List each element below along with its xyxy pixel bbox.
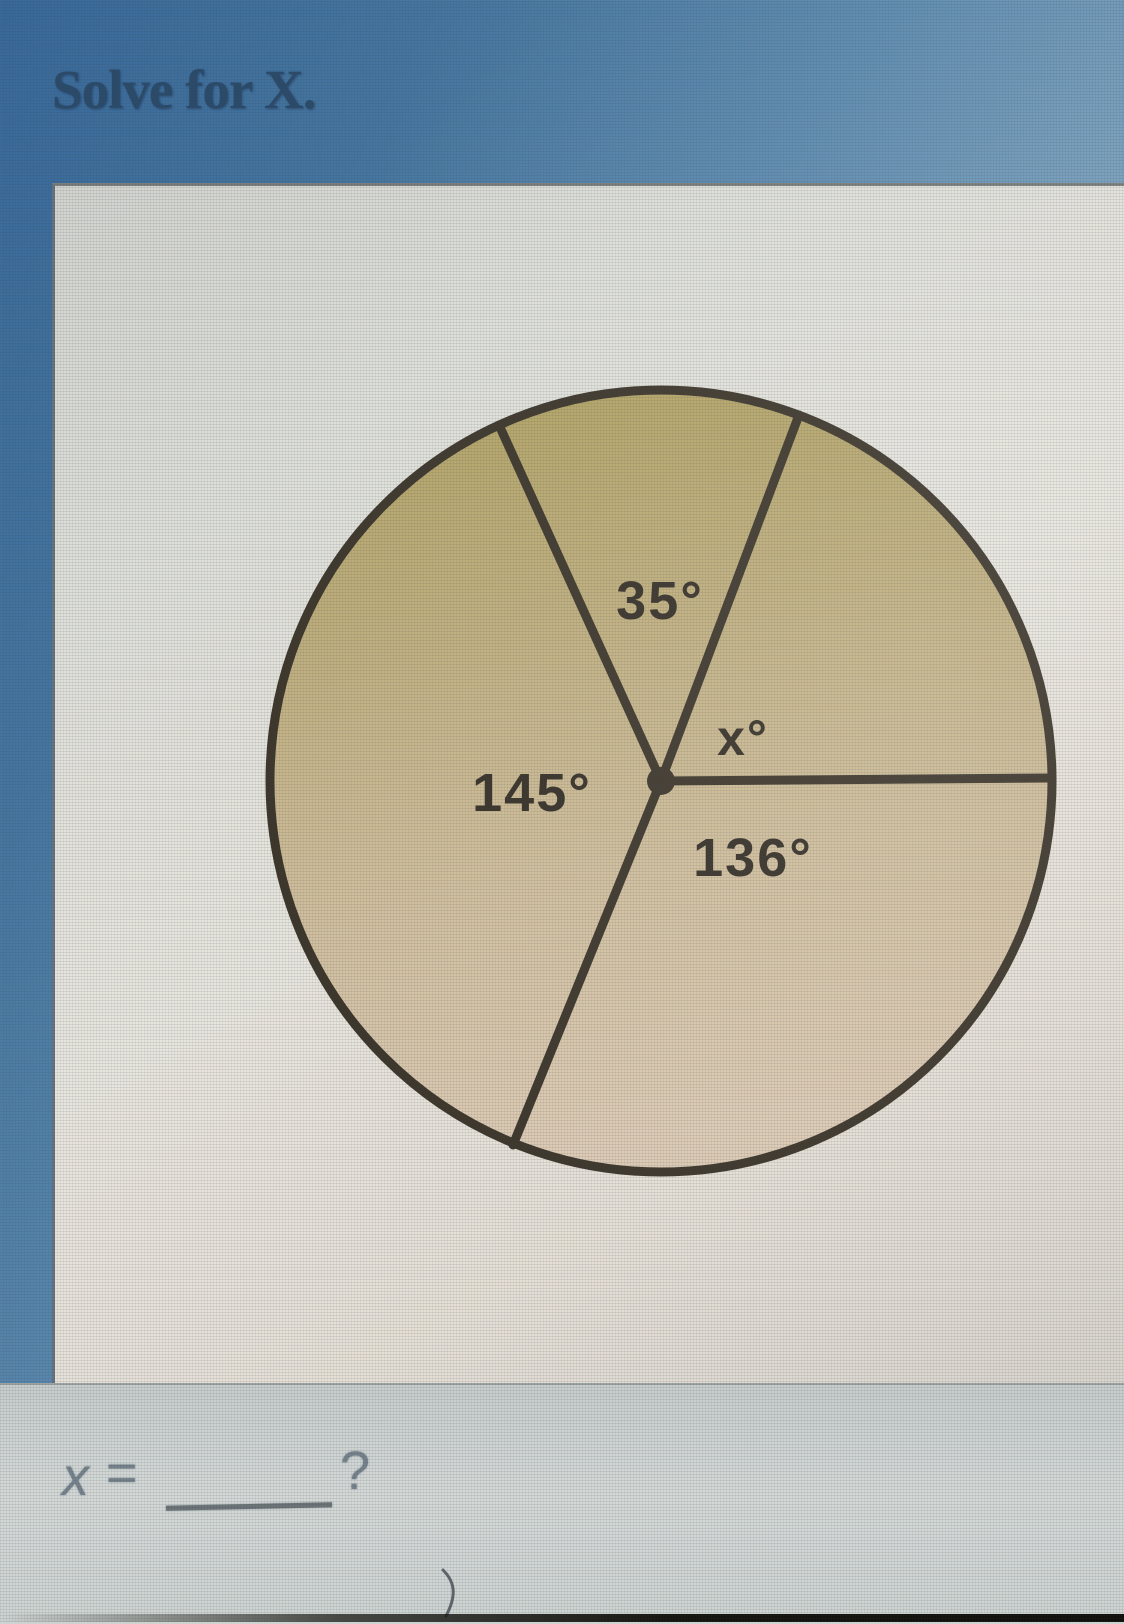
stray-mark: [438, 1568, 464, 1618]
answer-area: [0, 1383, 1124, 1624]
photo-bottom-edge: [0, 1614, 1124, 1622]
answer-variable: x: [62, 1446, 89, 1508]
angle-label-145: 145°: [472, 763, 592, 823]
radius-right: [661, 778, 1052, 781]
circle-angle-diagram: 35° x° 145° 136°: [261, 381, 1061, 1181]
angle-label-35: 35°: [616, 571, 704, 631]
page-title: Solve for X.: [52, 58, 315, 121]
center-point: [647, 767, 675, 795]
answer-equals-sign: =: [106, 1442, 138, 1504]
angle-label-136: 136°: [693, 828, 813, 888]
answer-question-mark: ?: [340, 1440, 370, 1502]
angle-label-x: x°: [717, 710, 769, 766]
